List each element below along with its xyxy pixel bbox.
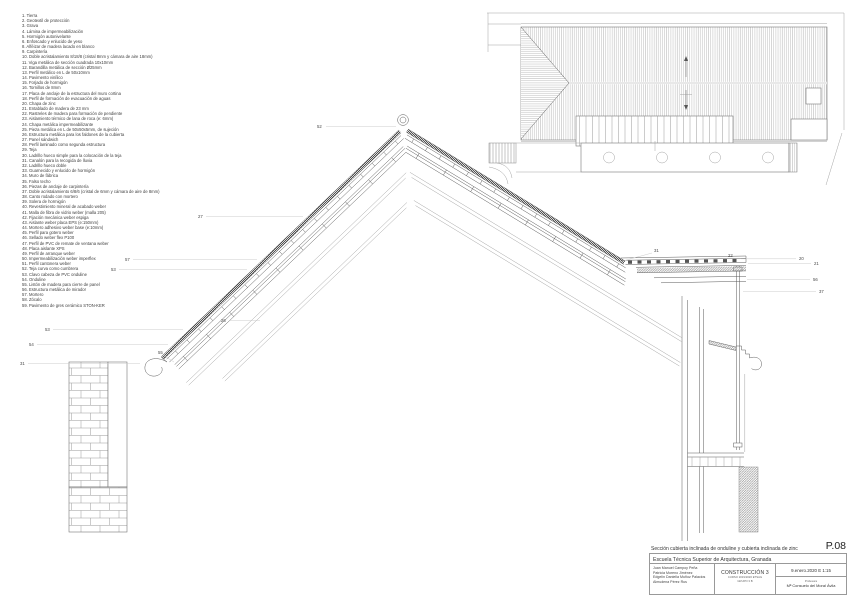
- callout-label: 56: [813, 277, 818, 282]
- callout-label: 54: [29, 342, 34, 347]
- wall-section-hatch: [739, 467, 758, 532]
- date-scale: 9.enero.2020 E 1:15: [776, 564, 846, 577]
- callout-label: 22: [728, 253, 733, 258]
- right-gutter: [750, 357, 762, 370]
- professor-name: Mª Consuelo del Moral Ávila: [776, 583, 846, 588]
- callout-label: 21: [814, 261, 819, 266]
- plan-stair: [489, 143, 516, 163]
- sheet-number: P.08: [826, 540, 846, 552]
- sheet-title: Sección cubierta inclinada de onduline y…: [651, 546, 798, 552]
- plan-chimney: [806, 88, 821, 104]
- callout-label: 55: [158, 350, 163, 355]
- left-gutter: [145, 359, 167, 376]
- author-name: Almudena Pérez Rus: [653, 580, 714, 585]
- course-cell: CONSTRUCCIÓN 3 CURSO 2019/2020 ETSAG GRU…: [715, 564, 776, 594]
- callout-label: 52: [317, 124, 322, 129]
- title-block: Sección cubierta inclinada de onduline y…: [649, 541, 847, 595]
- glazing-anchor: [734, 443, 743, 447]
- plan-notch: [791, 119, 827, 140]
- pier-inner-leaf: [108, 362, 127, 487]
- right-cornice: [736, 346, 750, 358]
- drawing-sheet: 1. Tierra2. Geotextil de protección3. Gr…: [0, 0, 848, 599]
- gutter-canopy: [709, 341, 736, 351]
- legend: 1. Tierra2. Geotextil de protección3. Gr…: [22, 13, 282, 308]
- callout-label: 31: [20, 361, 25, 366]
- callout-label: 26: [221, 318, 226, 323]
- callout-label: 31: [654, 248, 659, 253]
- ridge-tile: [398, 115, 409, 126]
- callout-label: 20: [799, 256, 804, 261]
- authors-cell: Juan Manuel Campoy Peña Patricia Moreno …: [650, 564, 715, 594]
- school-name: Escuela Técnica Superior de Arquitectura…: [649, 553, 847, 564]
- course-group: GRUPO 3 B: [715, 580, 775, 584]
- roof-plan: [487, 13, 844, 185]
- callout-label: 37: [819, 289, 824, 294]
- masonry-pier-base: [69, 487, 127, 532]
- plan-gallery-strip: [581, 143, 789, 172]
- legend-item: 59. Pavimento de gres cerámico STON-KER: [22, 303, 282, 308]
- masonry-pier: [69, 362, 108, 487]
- date-professor-cell: 9.enero.2020 E 1:15 Profesora Mª Consuel…: [776, 564, 846, 594]
- floor-slab-ticks: [692, 457, 740, 467]
- callout-label: 53: [45, 327, 50, 332]
